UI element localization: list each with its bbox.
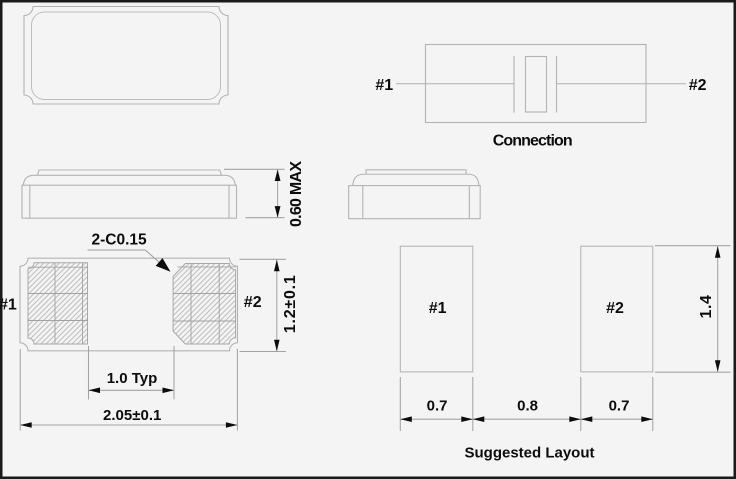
svg-text:#2: #2 (606, 300, 624, 317)
svg-text:#2: #2 (689, 77, 707, 94)
svg-text:#2: #2 (244, 294, 262, 311)
svg-text:0.8: 0.8 (517, 397, 538, 414)
svg-text:2-C0.15: 2-C0.15 (92, 232, 148, 249)
svg-text:0.7: 0.7 (427, 397, 448, 414)
svg-text:1.4: 1.4 (698, 295, 715, 319)
svg-text:Connection: Connection (493, 132, 573, 149)
svg-text:0.7: 0.7 (609, 397, 630, 414)
svg-text:0.60 MAX: 0.60 MAX (288, 161, 305, 227)
svg-text:1.2±0.1: 1.2±0.1 (282, 275, 299, 333)
svg-text:1.0 Typ: 1.0 Typ (107, 370, 158, 387)
svg-text:#1: #1 (375, 77, 393, 94)
svg-text:Suggested Layout: Suggested Layout (464, 444, 594, 461)
svg-text:#1: #1 (0, 296, 17, 313)
svg-text:#1: #1 (429, 300, 447, 317)
svg-text:2.05±0.1: 2.05±0.1 (103, 407, 161, 424)
